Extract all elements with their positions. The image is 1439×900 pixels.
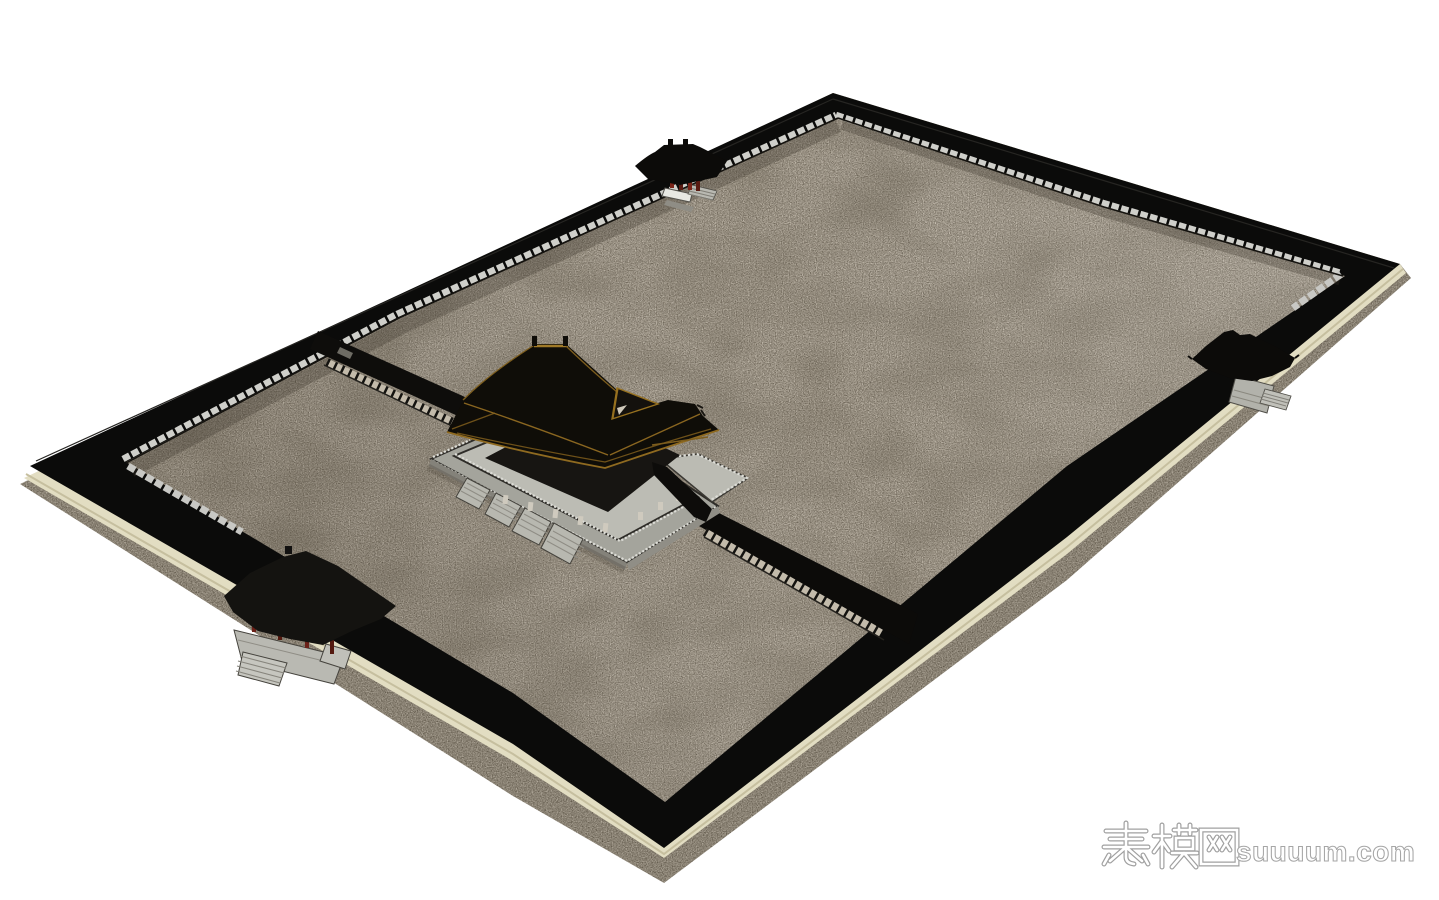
- svg-text:suuuum.com: suuuum.com: [1236, 836, 1415, 867]
